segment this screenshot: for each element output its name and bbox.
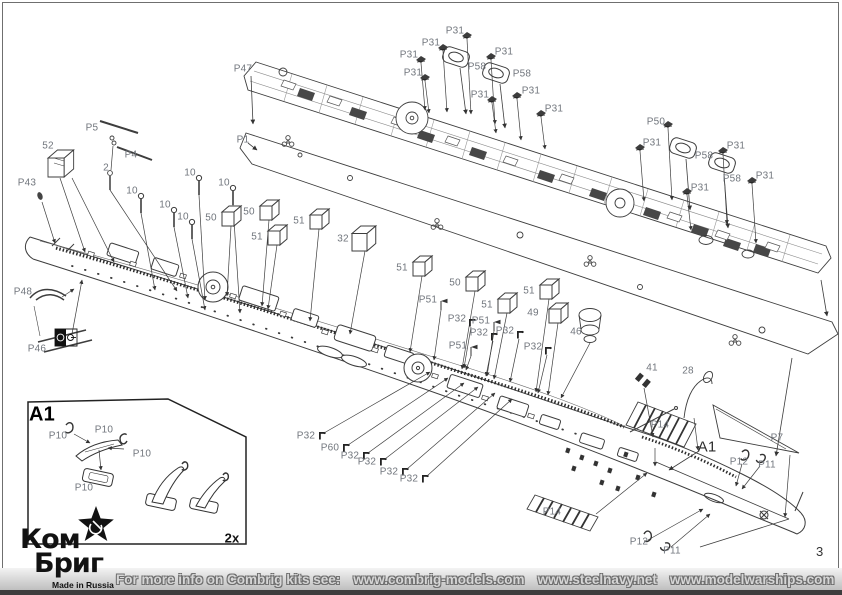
part-label-p32: P32 [400,474,418,485]
star-hammer-sickle-icon [76,504,116,546]
part-label-p31: P31 [522,86,540,97]
part-label-51: 51 [396,263,408,274]
part-label-p31: P31 [471,90,489,101]
part-label-p32: P32 [341,451,359,462]
part-label-46: 46 [570,327,582,338]
part-label-10: 10 [126,186,138,197]
instruction-sheet-page: P47P1P31P31P31P31P58P31P58P31P31P31P50P3… [0,0,842,595]
part-label-p10: P10 [49,431,67,442]
part-label-p14: P14 [543,507,561,518]
part-label-p32: P32 [380,467,398,478]
part-label-p14: P14 [651,420,669,431]
footer-link: www.steelnavy.net [538,572,657,587]
part-label-10: 10 [218,178,230,189]
part-label-10: 10 [184,168,196,179]
part-label-p4: P4 [125,150,138,161]
part-label-50: 50 [243,207,255,218]
part-label-p51: P51 [449,341,467,352]
part-label-50: 50 [449,278,461,289]
part-label-p31: P31 [404,68,422,79]
part-label-51: 51 [293,216,305,227]
part-label-49: 49 [527,308,539,319]
part-label-p12: P12 [630,537,648,548]
part-label-p31: P31 [422,38,440,49]
part-label-p58: P58 [723,174,741,185]
part-label-p58: P58 [513,69,531,80]
footer-intro: For more info on Combrig kits see: [116,572,340,587]
part-label-10: 10 [159,200,171,211]
part-label-p10: P10 [75,483,93,494]
part-label-51: 51 [523,286,535,297]
part-label-p32: P32 [470,328,488,339]
part-label-50: 50 [205,213,217,224]
part-label-p32: P32 [496,326,514,337]
logo-line2: Бриг [34,550,103,577]
part-label-32: 32 [337,234,349,245]
part-label-p48: P48 [14,287,32,298]
part-label-p32: P32 [448,314,466,325]
footer-link: www.combrig-models.com [353,572,524,587]
part-label-p31: P31 [495,47,513,58]
part-label-p10: P10 [133,449,151,460]
part-label-p32: P32 [524,342,542,353]
part-label-51: 51 [251,232,263,243]
part-label-p43: P43 [18,178,36,189]
part-label-p60: P60 [321,443,339,454]
part-label-p12: P12 [730,457,748,468]
part-label-a1: A1 [29,404,55,427]
part-label-28: 28 [682,366,694,377]
part-label-p31: P31 [727,141,745,152]
part-label-10: 10 [177,212,189,223]
part-label-2: 2 [103,163,109,174]
part-label-p5: P5 [86,123,99,134]
footer-link: www.modelwarships.com [670,572,835,587]
part-label-p50: P50 [647,117,665,128]
part-label-layer: P47P1P31P31P31P31P58P31P58P31P31P31P50P3… [0,0,842,595]
part-label-p51: P51 [472,316,490,327]
part-label-p31: P31 [400,50,418,61]
part-label-p1: P1 [237,135,250,146]
part-label-p31: P31 [643,138,661,149]
part-label-p11: P11 [758,460,776,471]
part-label-2x: 2x [225,531,240,546]
part-label-p58: P58 [468,62,486,73]
part-label-p51: P51 [419,295,437,306]
brand-logo: Ком Бриг Made in Russia [18,508,138,592]
part-label-p11: P11 [663,546,681,557]
part-label-p58: P58 [695,151,713,162]
part-label-p46: P46 [28,344,46,355]
part-label-p31: P31 [756,171,774,182]
part-label-p31: P31 [446,26,464,37]
part-label-p7: P7 [771,433,784,444]
part-label-a1: A1 [698,439,717,456]
part-label-41: 41 [646,363,658,374]
logo-tagline: Made in Russia [52,580,114,590]
part-label-52: 52 [42,141,54,152]
part-label-p32: P32 [358,457,376,468]
part-label-p10: P10 [95,425,113,436]
part-label-p31: P31 [545,104,563,115]
part-label-p47: P47 [234,64,252,75]
part-label-p31: P31 [691,183,709,194]
part-label-51: 51 [481,300,493,311]
part-label-p32: P32 [297,431,315,442]
footer-links: www.combrig-models.comwww.steelnavy.netw… [353,572,834,587]
page-number: 3 [816,544,823,559]
